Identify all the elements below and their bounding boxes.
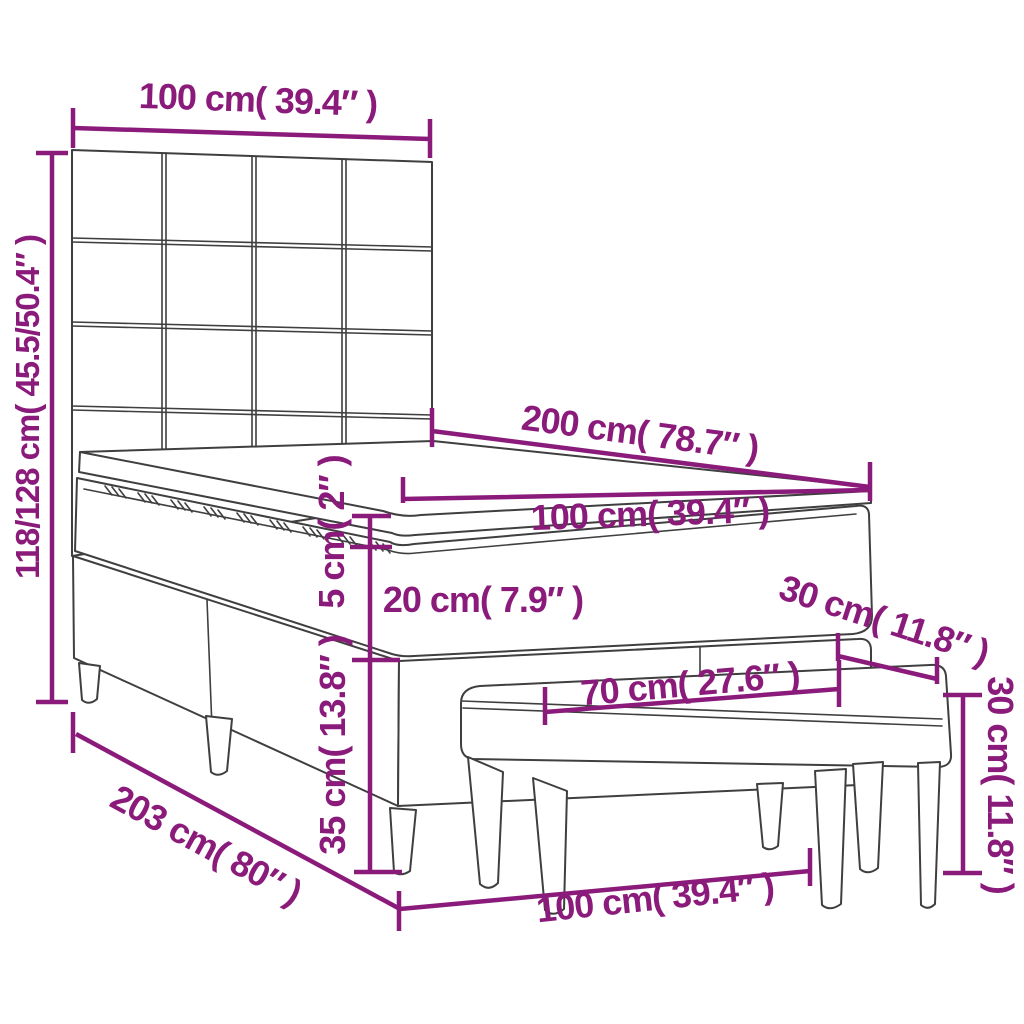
mattress-width-label: 100 cm( 39.4″ ) [530, 489, 770, 538]
topper-height-label: 5 cm( 2″ ) [311, 455, 352, 608]
bed-drawing [72, 150, 951, 914]
bed-width-label: 100 cm( 39.4″ ) [534, 865, 775, 931]
headboard-width-label: 100 cm( 39.4″ ) [138, 75, 378, 124]
bed-leg [206, 716, 232, 775]
mattress-height-label: 20 cm( 7.9″ ) [383, 579, 583, 620]
overall-height-label: 118/128 cm( 45.5/50.4″ ) [9, 235, 46, 579]
bed-leg [757, 783, 783, 849]
bed-leg [390, 808, 416, 874]
bench-leg [853, 762, 883, 872]
dimension-diagram: 100 cm( 39.4″ ) 118/128 cm( 45.5/50.4″ )… [0, 0, 1024, 1024]
bench-height-label: 30 cm( 11.8″ ) [980, 676, 1021, 893]
bench-leg [468, 757, 503, 888]
base-height-label: 35 cm( 13.8″ ) [312, 635, 353, 854]
bed-leg [79, 663, 100, 703]
bench-leg [815, 769, 846, 908]
diagram-canvas: 100 cm( 39.4″ ) 118/128 cm( 45.5/50.4″ )… [0, 0, 1024, 1024]
bench-leg [918, 762, 940, 908]
